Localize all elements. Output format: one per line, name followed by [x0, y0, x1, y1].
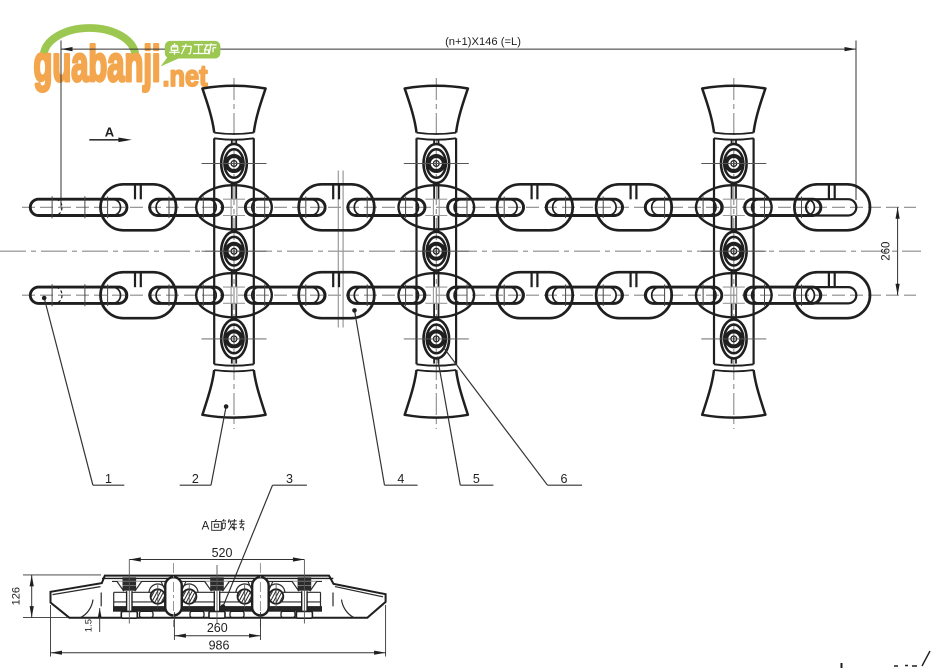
svg-text:3: 3 — [286, 472, 293, 486]
svg-text:A: A — [105, 125, 115, 140]
svg-text:6: 6 — [561, 472, 568, 486]
svg-text:1: 1 — [105, 472, 112, 486]
svg-text:(n+1)X146 (=L): (n+1)X146 (=L) — [445, 36, 521, 48]
svg-text:260: 260 — [207, 621, 228, 635]
svg-text:260: 260 — [881, 242, 893, 261]
svg-text:986: 986 — [209, 638, 230, 652]
svg-text:4: 4 — [397, 472, 404, 486]
svg-text:520: 520 — [212, 546, 233, 560]
svg-text:1.5: 1.5 — [84, 619, 95, 632]
svg-text:5: 5 — [473, 472, 480, 486]
svg-text:2: 2 — [192, 472, 199, 486]
svg-text:126: 126 — [11, 587, 23, 605]
svg-text:.net: .net — [163, 60, 208, 93]
svg-text:guabanji: guabanji — [34, 36, 161, 92]
svg-text:A: A — [202, 520, 210, 532]
